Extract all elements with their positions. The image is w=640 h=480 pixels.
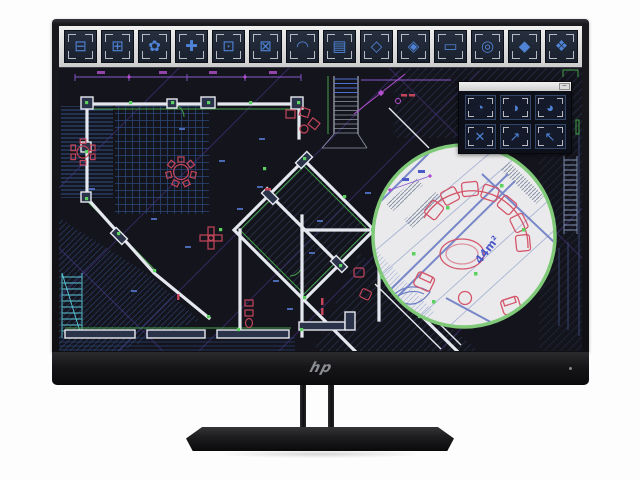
shelf-block-tool-icon: ▤ xyxy=(332,39,346,54)
plant-block xyxy=(200,227,222,249)
corner-brackets xyxy=(438,34,463,59)
corner-brackets xyxy=(549,34,574,59)
hp-monitor: ⊟⊞✿✚⊡⊠◠▤◇◈▭◎◆❖ xyxy=(52,19,589,385)
corner-brackets xyxy=(468,127,493,146)
corner-brackets xyxy=(503,127,528,146)
round-block-2-tool[interactable]: ◑ xyxy=(500,95,531,120)
round-block-1-tool[interactable]: ◔ xyxy=(465,95,496,120)
center-snap-tool[interactable]: ◎ xyxy=(471,30,504,63)
stairs-center xyxy=(322,76,367,148)
round-block-3-tool[interactable]: ◕ xyxy=(535,95,566,120)
corner-brackets xyxy=(290,34,315,59)
rotate-copy-block-tool-icon: ◈ xyxy=(408,39,420,54)
corner-brackets xyxy=(179,34,204,59)
corner-brackets xyxy=(327,34,352,59)
center-snap-tool-icon: ◎ xyxy=(481,39,494,54)
plant-block-tool-icon: ✿ xyxy=(148,39,161,54)
stretch-ne-tool[interactable]: ↗ xyxy=(500,124,531,149)
table-group-block-tool-icon: ✚ xyxy=(185,39,198,54)
corner-brackets xyxy=(216,34,241,59)
corner-brackets xyxy=(503,98,528,117)
solid-fill-tool-icon: ◆ xyxy=(519,39,531,54)
corner-brackets xyxy=(142,34,167,59)
corner-brackets xyxy=(364,34,389,59)
arch-block-tool[interactable]: ◠ xyxy=(286,30,319,63)
arch-block-tool-icon: ◠ xyxy=(296,39,309,54)
ruler-tool[interactable]: ▭ xyxy=(434,30,467,63)
hp-logo: hp xyxy=(307,360,334,376)
scale-all-tool-icon: ✕ xyxy=(475,130,486,143)
corner-brackets xyxy=(327,34,352,59)
round-block-2-tool-icon: ◑ xyxy=(511,101,519,114)
bed-block-tool-icon: ⊟ xyxy=(74,39,87,54)
monitor-screen: ⊟⊞✿✚⊡⊠◠▤◇◈▭◎◆❖ xyxy=(59,26,582,351)
base-shadow xyxy=(172,448,468,460)
monitor-chin-bezel: hp xyxy=(52,352,589,385)
corner-brackets xyxy=(142,34,167,59)
shelf-block-tool[interactable]: ▤ xyxy=(323,30,356,63)
corner-brackets xyxy=(401,34,426,59)
corner-brackets xyxy=(105,34,130,59)
table-group-block-tool[interactable]: ✚ xyxy=(175,30,208,63)
stand-pole-right xyxy=(328,385,334,429)
solid-fill-tool[interactable]: ◆ xyxy=(508,30,541,63)
corner-brackets xyxy=(468,98,493,117)
corner-brackets xyxy=(538,98,563,117)
corner-brackets xyxy=(538,127,563,146)
corner-brackets xyxy=(468,127,493,146)
corner-brackets xyxy=(512,34,537,59)
corner-brackets xyxy=(364,34,389,59)
stand-pole-left xyxy=(300,385,306,429)
corner-brackets xyxy=(538,127,563,146)
corner-brackets xyxy=(179,34,204,59)
cabinet-block-tool[interactable]: ⊞ xyxy=(101,30,134,63)
palette-minimize-button[interactable]: – xyxy=(559,83,570,90)
round-block-3-tool-icon: ◕ xyxy=(546,101,554,114)
hatch-fill-tool[interactable]: ❖ xyxy=(545,30,578,63)
rotate-block-tool[interactable]: ◇ xyxy=(360,30,393,63)
corner-brackets xyxy=(68,34,93,59)
corner-brackets xyxy=(68,34,93,59)
toilet-block-tool-icon: ⊡ xyxy=(222,39,235,54)
palette-titlebar[interactable]: – xyxy=(459,82,571,91)
corner-brackets xyxy=(253,34,278,59)
power-led-icon xyxy=(569,367,572,370)
cad-toolbar: ⊟⊞✿✚⊡⊠◠▤◇◈▭◎◆❖ xyxy=(59,26,582,68)
corner-brackets xyxy=(503,98,528,117)
corner-brackets xyxy=(401,34,426,59)
bed-block-tool[interactable]: ⊟ xyxy=(64,30,97,63)
stretch-ne-tool-icon: ↗ xyxy=(510,130,521,143)
product-photo-stage: ⊟⊞✿✚⊡⊠◠▤◇◈▭◎◆❖ xyxy=(0,0,640,480)
sofa-group xyxy=(286,107,320,133)
floating-tool-palette: – ◔◑◕✕↗↖ xyxy=(458,81,572,154)
hatch-fill-tool-icon: ❖ xyxy=(555,39,568,54)
stretch-nw-tool-icon: ↖ xyxy=(545,130,556,143)
corner-brackets xyxy=(468,98,493,117)
monitor-bezel: ⊟⊞✿✚⊡⊠◠▤◇◈▭◎◆❖ xyxy=(52,19,589,352)
corner-brackets xyxy=(105,34,130,59)
round-block-1-tool-icon: ◔ xyxy=(476,101,484,114)
rotate-block-tool-icon: ◇ xyxy=(371,39,383,54)
rotate-copy-block-tool[interactable]: ◈ xyxy=(397,30,430,63)
corner-brackets xyxy=(503,127,528,146)
stretch-nw-tool[interactable]: ↖ xyxy=(535,124,566,149)
corner-brackets xyxy=(538,98,563,117)
corner-brackets xyxy=(290,34,315,59)
corner-brackets xyxy=(475,34,500,59)
corner-brackets xyxy=(216,34,241,59)
ruler-tool-icon: ▭ xyxy=(443,39,457,54)
bathtub-block-tool[interactable]: ⊠ xyxy=(249,30,282,63)
corner-brackets xyxy=(475,34,500,59)
palette-grid: ◔◑◕✕↗↖ xyxy=(459,91,571,153)
cabinet-block-tool-icon: ⊞ xyxy=(111,39,124,54)
scale-all-tool[interactable]: ✕ xyxy=(465,124,496,149)
corner-brackets xyxy=(549,34,574,59)
toilet-block-tool[interactable]: ⊡ xyxy=(212,30,245,63)
corner-brackets xyxy=(253,34,278,59)
corner-brackets xyxy=(512,34,537,59)
plant-block-tool[interactable]: ✿ xyxy=(138,30,171,63)
bathtub-block-tool-icon: ⊠ xyxy=(259,39,272,54)
cad-canvas-area: 44m² – ◔◑◕✕↗↖ xyxy=(59,68,582,351)
corner-brackets xyxy=(438,34,463,59)
